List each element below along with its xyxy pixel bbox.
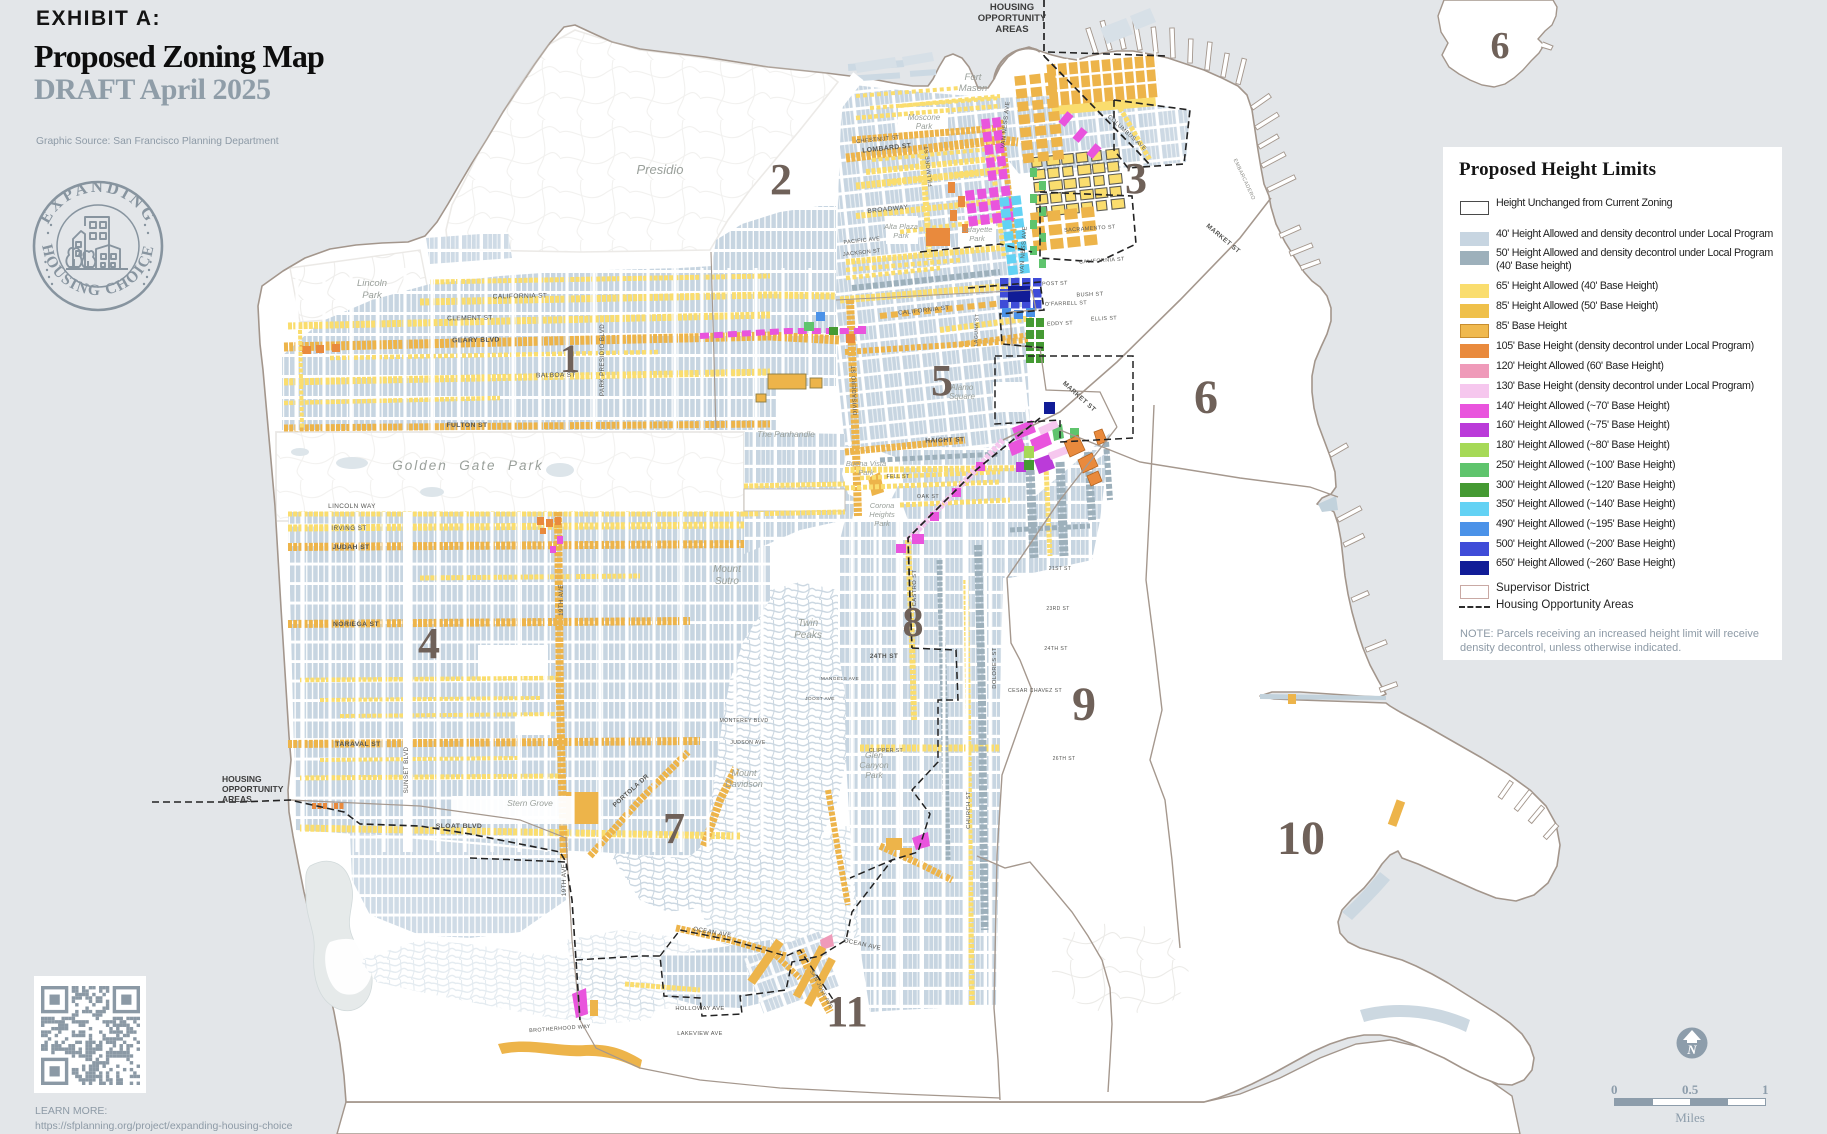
svg-text:Stern Grove: Stern Grove [507,798,553,808]
svg-text:Park: Park [865,770,883,780]
svg-text:Glen: Glen [865,750,883,760]
svg-text:4: 4 [418,619,440,668]
svg-text:8: 8 [903,600,924,646]
svg-text:JUDAH ST: JUDAH ST [332,544,370,551]
svg-text:24TH ST: 24TH ST [870,653,898,660]
svg-text:HOUSING: HOUSING [222,774,262,784]
svg-text:FULTON ST: FULTON ST [446,422,488,429]
svg-text:EDDY ST: EDDY ST [1047,321,1074,328]
svg-text:EXPANDING: EXPANDING [35,177,161,227]
svg-text:SLOAT BLVD: SLOAT BLVD [436,823,482,830]
svg-text:26TH ST: 26TH ST [1053,756,1076,762]
svg-text:HAIGHT ST: HAIGHT ST [925,436,964,444]
svg-text:Heights: Heights [869,510,895,519]
svg-text:Park: Park [858,468,875,477]
svg-text:19TH AVE: 19TH AVE [558,584,565,616]
svg-text:FELL ST: FELL ST [886,474,910,480]
svg-text:IRVING ST: IRVING ST [331,525,366,532]
svg-text:10: 10 [1277,812,1325,865]
svg-text:Lafayette: Lafayette [962,225,993,234]
svg-text:Moscone: Moscone [908,113,941,122]
svg-text:OAK ST: OAK ST [917,494,939,500]
svg-text:LINCOLN WAY: LINCOLN WAY [328,503,376,510]
svg-text:AREAS: AREAS [222,794,252,804]
svg-text:21ST ST: 21ST ST [1049,566,1071,572]
svg-text:Peaks: Peaks [794,630,822,641]
svg-text:Park: Park [969,234,986,243]
svg-text:6: 6 [1491,25,1510,67]
svg-text:24TH ST: 24TH ST [1044,646,1068,652]
svg-text:SUNSET BLVD: SUNSET BLVD [403,746,410,793]
svg-text:TARAVAL ST: TARAVAL ST [335,741,381,748]
svg-text:Mason: Mason [959,83,988,94]
svg-text:5: 5 [931,356,953,405]
svg-text:Park: Park [893,231,910,240]
svg-text:HOUSING: HOUSING [990,2,1034,13]
svg-text:Mount: Mount [713,564,742,575]
svg-text:CLEMENT ST: CLEMENT ST [447,315,493,323]
svg-text:Square: Square [949,392,975,401]
svg-text:LAGUNA ST: LAGUNA ST [973,313,980,346]
svg-text:PARK PRESIDIO BLVD: PARK PRESIDIO BLVD [599,324,606,396]
svg-text:Mount: Mount [731,768,757,778]
svg-text:7: 7 [663,804,685,853]
svg-text:OPPORTUNITY: OPPORTUNITY [978,13,1047,24]
svg-text:11: 11 [826,987,868,1036]
svg-text:AREAS: AREAS [995,24,1028,35]
svg-text:ELLIS ST: ELLIS ST [1091,316,1118,323]
svg-text:LAKEVIEW AVE: LAKEVIEW AVE [677,1031,722,1037]
svg-text:2: 2 [770,155,792,204]
svg-text:Sutro: Sutro [715,576,739,587]
svg-text:NORIEGA ST: NORIEGA ST [333,621,379,628]
svg-text:Presidio: Presidio [637,162,684,177]
svg-text:Canyon: Canyon [859,760,889,770]
svg-text:Twin: Twin [798,618,819,629]
svg-text:HOLLOWAY AVE: HOLLOWAY AVE [675,1006,724,1012]
svg-text:Davidson: Davidson [725,779,763,789]
svg-text:9: 9 [1072,678,1096,731]
svg-text:GEARY BLVD: GEARY BLVD [452,337,500,345]
svg-text:HOUSING CHOICE: HOUSING CHOICE [38,243,158,300]
svg-text:Park: Park [362,290,383,301]
svg-text:Alamo: Alamo [950,383,974,392]
svg-text:Golden Gate Park: Golden Gate Park [392,458,544,473]
svg-text:DOLORES ST: DOLORES ST [992,647,998,688]
svg-text:OPPORTUNITY: OPPORTUNITY [222,784,284,794]
svg-text:23RD ST: 23RD ST [1046,606,1069,612]
svg-text:BUSH ST: BUSH ST [1076,292,1103,299]
svg-text:CHURCH ST: CHURCH ST [966,791,972,829]
svg-text:Fort: Fort [965,72,982,83]
svg-text:MONTEREY BLVD: MONTEREY BLVD [719,718,768,724]
svg-text:The Panhandle: The Panhandle [757,429,815,439]
svg-text:CALIFORNIA ST: CALIFORNIA ST [493,293,548,301]
svg-text:MANGELS AVE: MANGELS AVE [821,676,859,682]
svg-text:Buena Vista: Buena Vista [846,459,886,468]
svg-text:JOOST AVE: JOOST AVE [805,696,835,702]
svg-text:N: N [1686,1042,1697,1057]
svg-text:Alta Plaza: Alta Plaza [883,222,918,231]
svg-text:19TH AVE: 19TH AVE [561,864,568,897]
svg-text:Corona: Corona [870,501,895,510]
svg-text:1: 1 [560,336,580,381]
svg-text:Park: Park [874,519,891,528]
svg-text:JUDSON AVE: JUDSON AVE [730,740,766,746]
svg-text:6: 6 [1194,371,1218,424]
svg-text:Lincoln: Lincoln [357,278,387,289]
svg-text:Park: Park [916,122,933,131]
svg-text:CESAR CHAVEZ ST: CESAR CHAVEZ ST [1008,688,1062,694]
svg-text:3: 3 [1125,154,1147,203]
svg-text:POST ST: POST ST [1042,281,1068,288]
